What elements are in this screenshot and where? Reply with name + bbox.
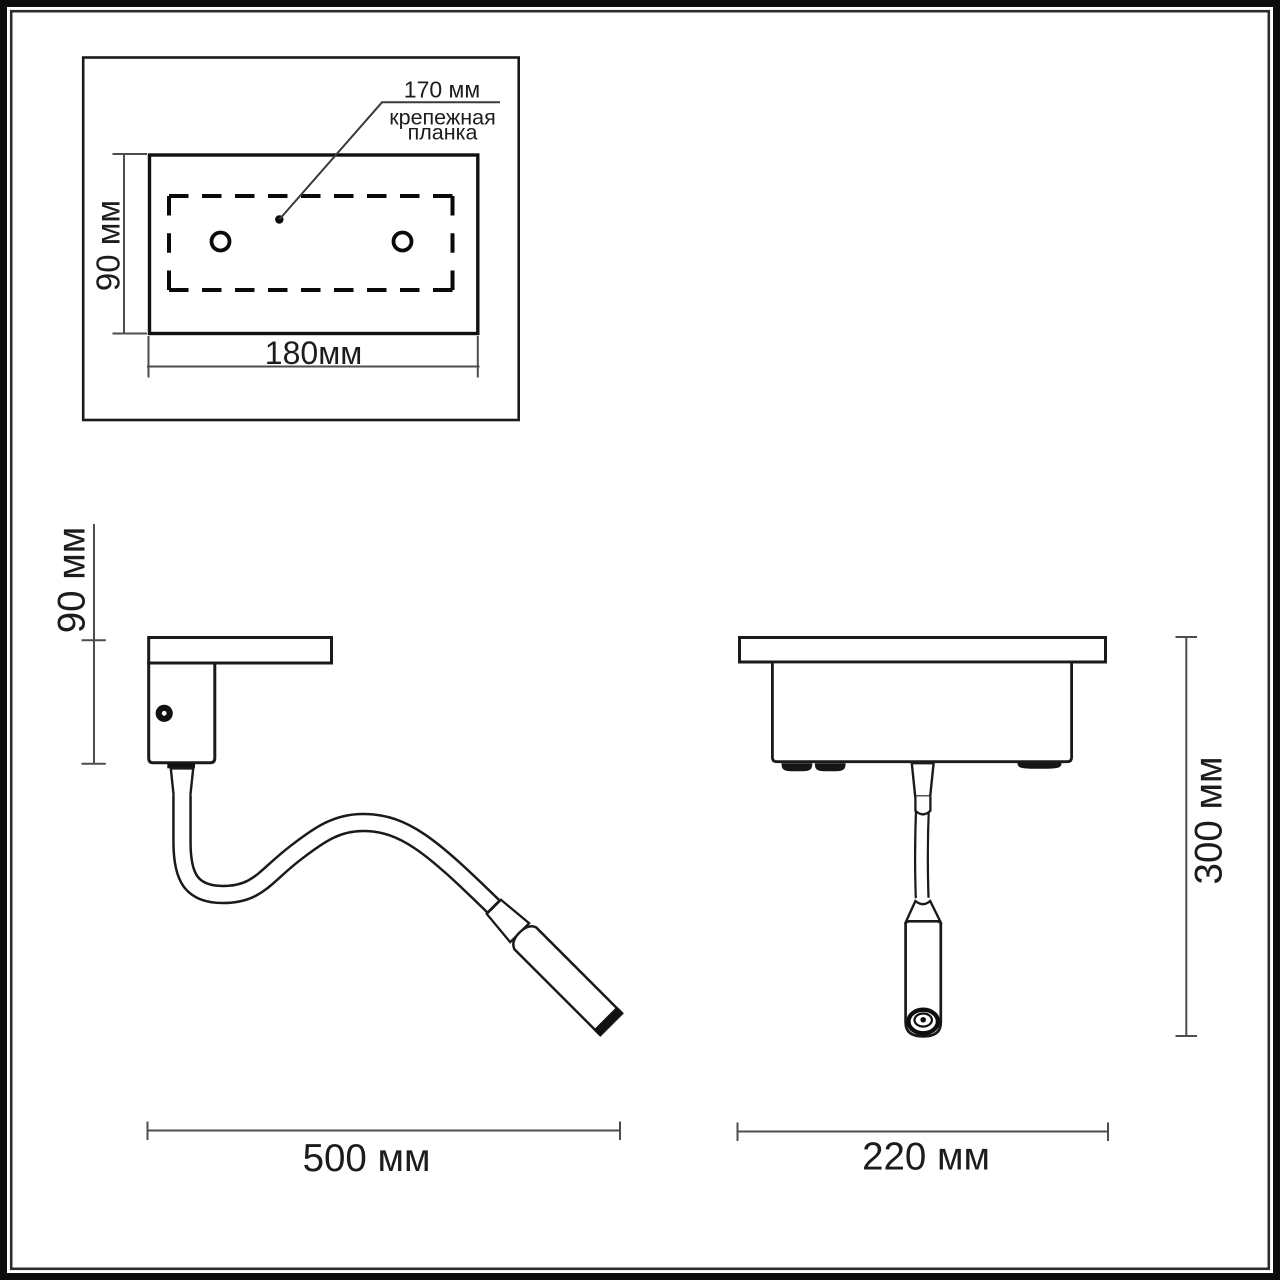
svg-text:планка: планка — [408, 121, 478, 145]
svg-text:90 мм: 90 мм — [51, 527, 94, 633]
svg-text:170 мм: 170 мм — [404, 77, 480, 103]
svg-text:500 мм: 500 мм — [303, 1137, 431, 1180]
svg-text:90 мм: 90 мм — [90, 200, 127, 291]
svg-text:300 мм: 300 мм — [1188, 757, 1231, 885]
svg-text:180мм: 180мм — [265, 335, 362, 371]
svg-text:220 мм: 220 мм — [862, 1136, 990, 1179]
